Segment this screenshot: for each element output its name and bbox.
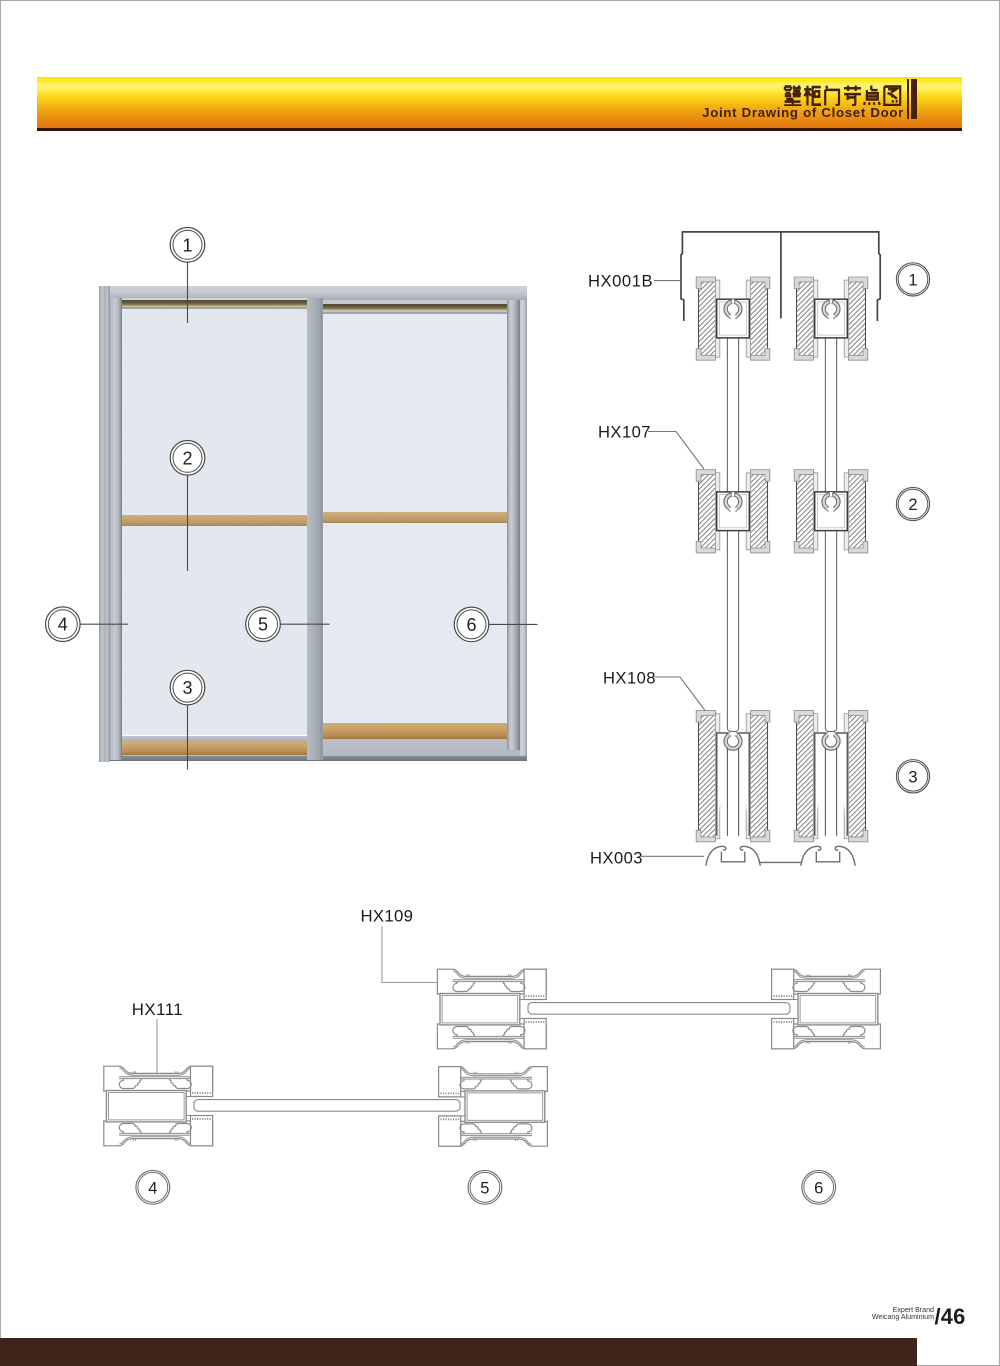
svg-text:4: 4: [58, 615, 68, 635]
svg-text:5: 5: [258, 615, 268, 635]
svg-text:4: 4: [148, 1179, 157, 1197]
svg-text:6: 6: [466, 615, 476, 635]
svg-text:HX109: HX109: [361, 907, 414, 926]
svg-text:1: 1: [908, 271, 917, 289]
svg-text:HX111: HX111: [132, 1000, 183, 1019]
svg-text:HX001B: HX001B: [588, 272, 653, 291]
svg-text:3: 3: [182, 678, 192, 698]
svg-text:HX108: HX108: [603, 669, 656, 688]
svg-text:HX107: HX107: [598, 423, 651, 442]
svg-text:1: 1: [182, 235, 192, 255]
svg-text:2: 2: [908, 496, 917, 514]
svg-text:5: 5: [480, 1179, 489, 1197]
svg-text:3: 3: [908, 768, 917, 786]
svg-text:6: 6: [814, 1179, 823, 1197]
svg-text:2: 2: [182, 448, 192, 468]
svg-text:HX003: HX003: [590, 848, 643, 867]
